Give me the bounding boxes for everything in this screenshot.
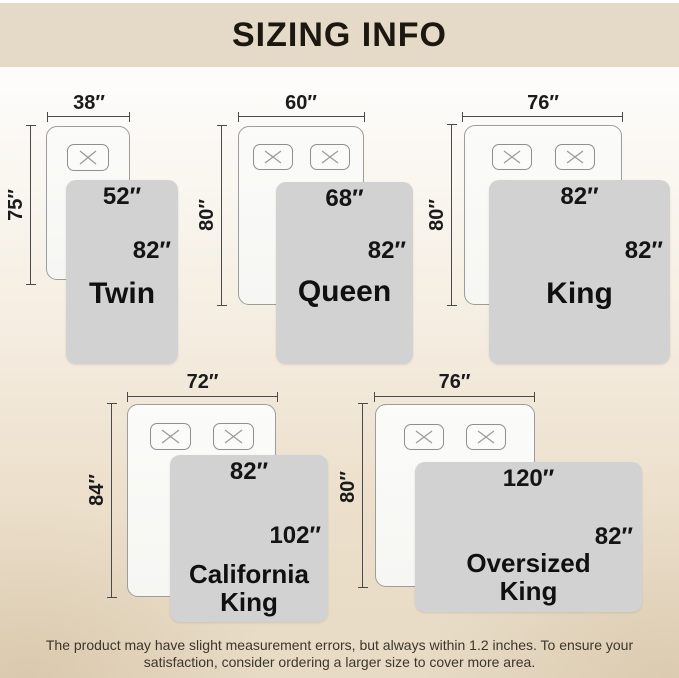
length-dimension-line — [451, 125, 452, 305]
mattress-width-label: 76″ — [463, 92, 623, 115]
width-dimension-line — [375, 396, 534, 397]
blanket-width-label: 52″ — [66, 183, 178, 211]
mattress-length-label: 84″ — [85, 448, 109, 532]
mattress-length-label: 80″ — [425, 173, 449, 257]
pillow-x-icon — [493, 145, 531, 169]
length-dimension-line — [30, 126, 31, 284]
blanket-overlay: 82″ 102″ California King — [170, 455, 328, 622]
footer-note-line2: satisfaction, consider ordering a larger… — [0, 654, 679, 671]
pillow-x-icon — [311, 145, 349, 169]
length-dimension-line — [221, 126, 222, 305]
mattress-width-label: 76″ — [375, 371, 534, 394]
pillow-x-icon — [467, 425, 505, 449]
blanket-overlay: 120″ 82″ Oversized King — [415, 462, 642, 612]
size-name: Oversized King — [415, 550, 642, 606]
blanket-overlay: 52″ 82″ Twin — [66, 180, 178, 364]
mattress-width-label: 60″ — [238, 92, 364, 115]
size-name: California King — [170, 561, 328, 617]
width-dimension-line — [239, 116, 364, 117]
blanket-width-label: 68″ — [276, 185, 413, 213]
pillow-icon — [466, 424, 506, 450]
footer-note-line1: The product may have slight measurement … — [0, 637, 679, 654]
pillow-x-icon — [254, 145, 292, 169]
length-dimension-line — [111, 404, 112, 597]
mattress-width-label: 38″ — [46, 92, 132, 115]
pillow-x-icon — [68, 145, 108, 170]
blanket-length-label: 82″ — [625, 237, 663, 265]
header-bar: SIZING INFO — [0, 3, 679, 67]
pillow-icon — [253, 144, 293, 170]
length-dimension-line — [362, 404, 363, 587]
pillow-icon — [492, 144, 532, 170]
pillow-x-icon — [405, 425, 443, 449]
blanket-width-label: 120″ — [415, 465, 642, 493]
width-dimension-line — [128, 396, 277, 397]
blanket-width-label: 82″ — [489, 183, 670, 211]
width-dimension-line — [463, 116, 622, 117]
mattress-width-label: 72″ — [128, 371, 277, 394]
pillow-x-icon — [556, 145, 594, 169]
mattress-length-label: 80″ — [195, 173, 219, 257]
blanket-length-label: 82″ — [595, 523, 633, 551]
pillow-x-icon — [214, 424, 253, 449]
pillow-x-icon — [151, 424, 190, 449]
size-name: Twin — [66, 277, 178, 311]
pillow-icon — [67, 144, 109, 171]
pillow-icon — [213, 423, 254, 450]
blanket-width-label: 82″ — [170, 458, 328, 486]
mattress-length-label: 80″ — [336, 445, 360, 529]
footer-note: The product may have slight measurement … — [0, 637, 679, 670]
blanket-length-label: 102″ — [269, 522, 321, 550]
size-name: King — [489, 277, 670, 311]
size-name: Queen — [276, 275, 413, 309]
blanket-length-label: 82″ — [368, 237, 406, 265]
page-title: SIZING INFO — [232, 16, 447, 55]
width-dimension-line — [48, 116, 129, 117]
pillow-icon — [150, 423, 191, 450]
blanket-length-label: 82″ — [133, 237, 171, 265]
pillow-icon — [555, 144, 595, 170]
blanket-overlay: 82″ 82″ King — [489, 180, 670, 364]
pillow-icon — [310, 144, 350, 170]
blanket-overlay: 68″ 82″ Queen — [276, 182, 413, 364]
mattress-length-label: 75″ — [4, 163, 28, 247]
sizing-info-infographic: SIZING INFO 38″ 75″ 52″ 82″ Twin 60″ 80″ — [0, 0, 679, 678]
pillow-icon — [404, 424, 444, 450]
